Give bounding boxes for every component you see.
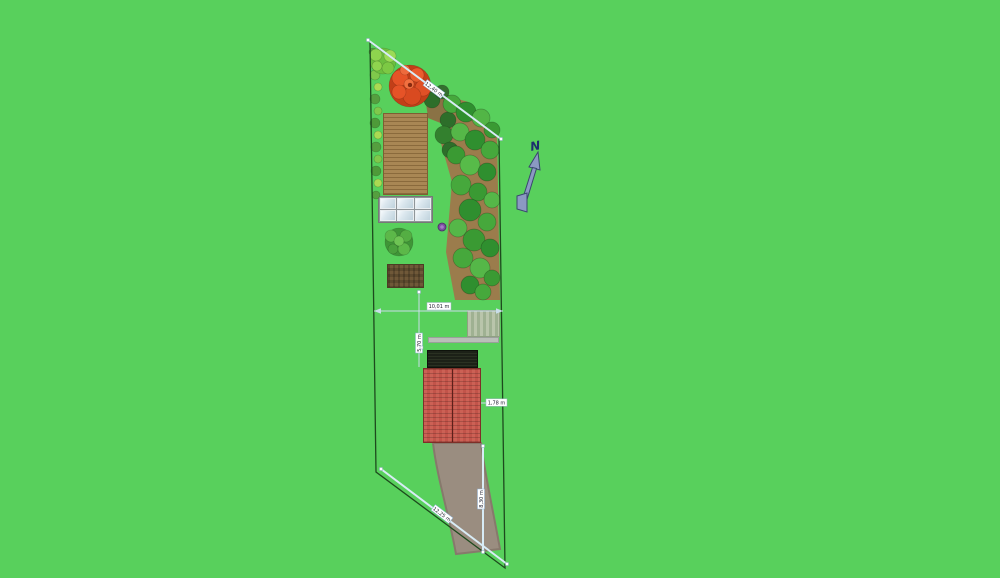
center-shrub[interactable] <box>385 228 413 256</box>
dimension-bottom-boundary[interactable]: 12,25 m <box>380 468 509 566</box>
dimension-label-yard-depth: 8,30 m <box>479 490 485 508</box>
dimension-top-boundary[interactable]: 12,40 m <box>367 39 503 141</box>
dimension-house-offset[interactable]: 1,78 m <box>481 399 507 407</box>
purple-plant[interactable] <box>438 223 446 231</box>
dimension-label-house-offset: 1,78 m <box>488 400 506 406</box>
north-label: N <box>529 138 541 154</box>
corner-marker <box>420 346 423 349</box>
north-arrow[interactable]: N <box>517 138 541 212</box>
dimension-label-width: 10,01 m <box>429 304 450 310</box>
dimension-plot-width[interactable]: 10,01 m <box>374 303 503 314</box>
overlay-layer: 12,40 m 10,01 m 5,70 m 1,78 m <box>0 0 1000 578</box>
garden-plan-canvas: 12,40 m 10,01 m 5,70 m 1,78 m <box>0 0 1000 578</box>
dimension-yard-depth[interactable]: 8,30 m <box>478 445 486 554</box>
dimension-garden-depth[interactable]: 5,70 m <box>416 291 424 368</box>
